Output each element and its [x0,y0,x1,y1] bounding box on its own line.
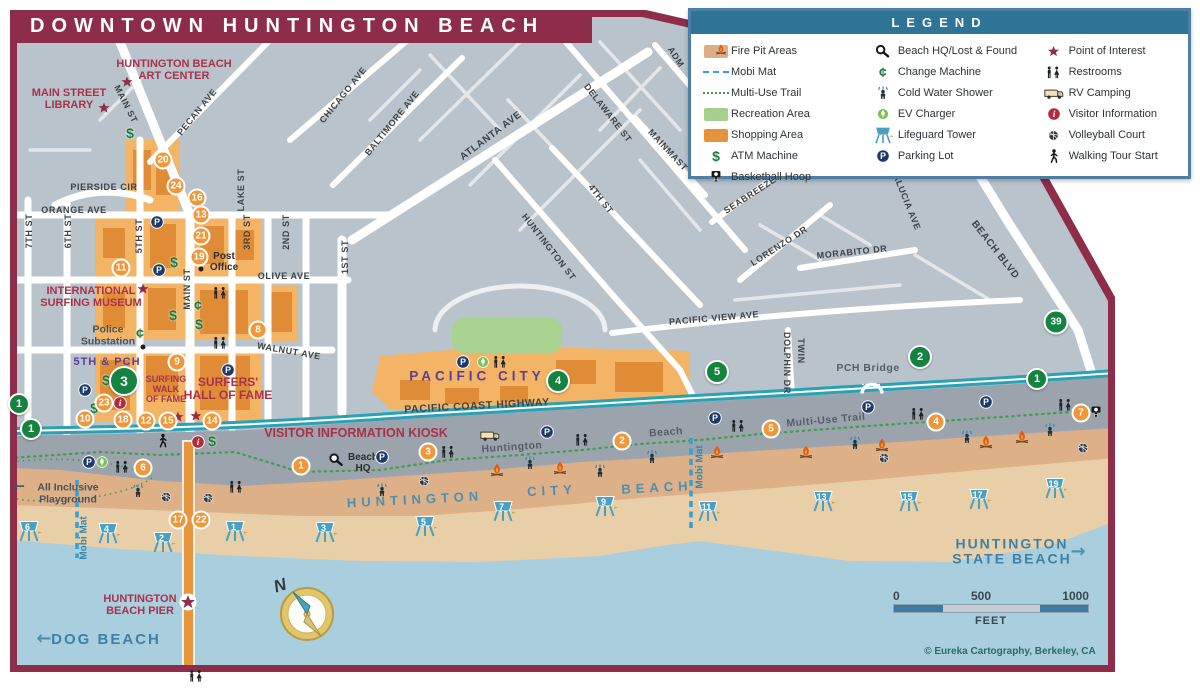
legend-item-label: Basketball Hoop [731,171,811,183]
scale-0: 0 [893,589,900,603]
legend-item: Visitor Information [1039,104,1182,124]
legend-icon-cell [701,108,731,121]
legend-item-label: Change Machine [898,66,981,78]
legend-item-label: Point of Interest [1069,45,1146,57]
legend-item: Basketball Hoop [701,167,864,187]
ln-mobi-swatch [703,71,729,73]
legend-icon-cell [701,71,731,73]
legend-item: Shopping Area [701,125,864,145]
legend-icon-cell: $ [701,149,731,163]
legend-item: Recreation Area [701,104,864,124]
legend-item: Fire Pit Areas [701,41,864,61]
legend-panel: LEGEND Fire Pit AreasMobi MatMulti-Use T… [688,8,1191,179]
legend-item-label: EV Charger [898,108,955,120]
legend-icon-cell [701,170,731,185]
pier [183,441,194,682]
scale-strip [893,604,1089,613]
legend-icon-cell [1039,66,1069,79]
legend-item: EV Charger [868,104,1035,124]
legend-item-label: RV Camping [1069,87,1131,99]
sw-fire-swatch [704,45,728,58]
rv-camping-icon [1044,86,1064,100]
point-of-interest-icon [1047,45,1060,58]
legend-item-label: Shopping Area [731,129,803,141]
legend-item-label: Walking Tour Start [1069,150,1158,162]
atm-icon: $ [712,149,720,163]
legend-item: Point of Interest [1039,41,1182,61]
legend-item-label: Lifeguard Tower [898,129,976,141]
legend-item-label: Cold Water Shower [898,87,993,99]
volleyball-icon [1048,130,1059,141]
legend-item: Mobi Mat [701,62,864,82]
legend-item: Volleyball Court [1039,125,1182,145]
beach-hq-icon [875,44,890,59]
legend-item-label: Recreation Area [731,108,810,120]
legend-icon-cell [868,86,898,100]
walking-tour-icon [1048,149,1060,164]
legend-icon-cell [1039,45,1069,58]
change-machine-icon: ¢ [879,65,887,79]
legend-item: RV Camping [1039,83,1182,103]
scale-500: 500 [971,589,991,603]
legend-icon-cell [1039,130,1069,141]
parking-icon [876,149,890,163]
legend-icon-cell [868,126,898,144]
legend-item-label: Fire Pit Areas [731,45,797,57]
legend-item-label: ATM Machine [731,150,798,162]
legend-item: ¢Change Machine [868,62,1035,82]
compass-north-label: N [271,575,289,598]
legend-icon-cell [701,129,731,142]
legend-icon-cell [868,44,898,59]
ln-trail-swatch [703,92,729,94]
legend-item: Cold Water Shower [868,83,1035,103]
legend-column-1: Fire Pit AreasMobi MatMulti-Use TrailRec… [701,41,864,187]
visitor-information-icon [1047,107,1061,121]
legend-icon-cell [1039,86,1069,100]
sw-rec-swatch [704,108,728,121]
legend-item-label: Parking Lot [898,150,954,162]
sw-shop-swatch [704,129,728,142]
legend-item-label: Visitor Information [1069,108,1157,120]
legend-body: Fire Pit AreasMobi MatMulti-Use TrailRec… [691,34,1188,187]
legend-item-label: Mobi Mat [731,66,776,78]
legend-icon-cell [701,92,731,94]
legend-title: LEGEND [691,11,1188,34]
basketball-hoop-icon [709,170,723,185]
compass: N [272,578,342,650]
legend-item-label: Volleyball Court [1069,129,1145,141]
legend-item: Beach HQ/Lost & Found [868,41,1035,61]
map-title-banner: DOWNTOWN HUNTINGTON BEACH [10,10,592,43]
legend-item-label: Beach HQ/Lost & Found [898,45,1017,57]
scale-bar: 0 500 1000 FEET [893,589,1089,627]
legend-icon-cell [701,45,731,58]
legend-icon-cell: ¢ [868,65,898,79]
legend-icon-cell [1039,149,1069,164]
map-title: DOWNTOWN HUNTINGTON BEACH [30,15,544,38]
legend-item: Restrooms [1039,62,1182,82]
legend-icon-cell [1039,107,1069,121]
cold-water-shower-icon [876,86,890,100]
lifeguard-tower-icon [872,126,894,144]
copyright: © Eureka Cartography, Berkeley, CA [905,646,1115,657]
ev-charger-icon [877,108,889,120]
legend-item-label: Multi-Use Trail [731,87,801,99]
legend-item: $ATM Machine [701,146,864,166]
legend-column-3: Point of InterestRestroomsRV CampingVisi… [1039,41,1182,187]
scale-1000: 1000 [1062,589,1089,603]
legend-icon-cell [868,108,898,120]
legend-item: Walking Tour Start [1039,146,1182,166]
restrooms-icon [1045,66,1062,79]
legend-icon-cell [868,149,898,163]
legend-column-2: Beach HQ/Lost & Found¢Change MachineCold… [868,41,1035,187]
legend-item: Multi-Use Trail [701,83,864,103]
legend-item-label: Restrooms [1069,66,1122,78]
legend-item: Parking Lot [868,146,1035,166]
scale-unit: FEET [893,615,1089,627]
legend-item: Lifeguard Tower [868,125,1035,145]
